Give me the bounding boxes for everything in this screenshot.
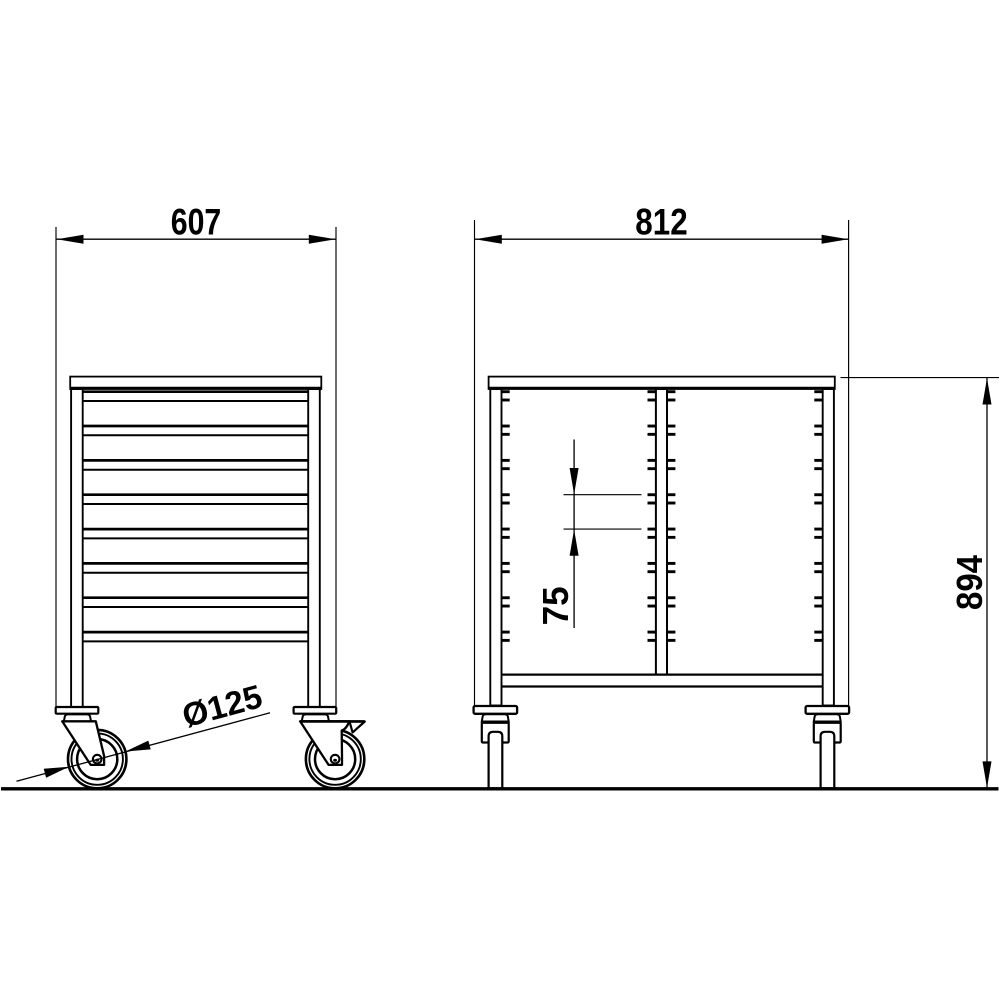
svg-text:894: 894 [949,555,990,610]
svg-text:812: 812 [635,201,687,242]
svg-text:75: 75 [535,586,576,625]
svg-text:607: 607 [171,201,222,242]
